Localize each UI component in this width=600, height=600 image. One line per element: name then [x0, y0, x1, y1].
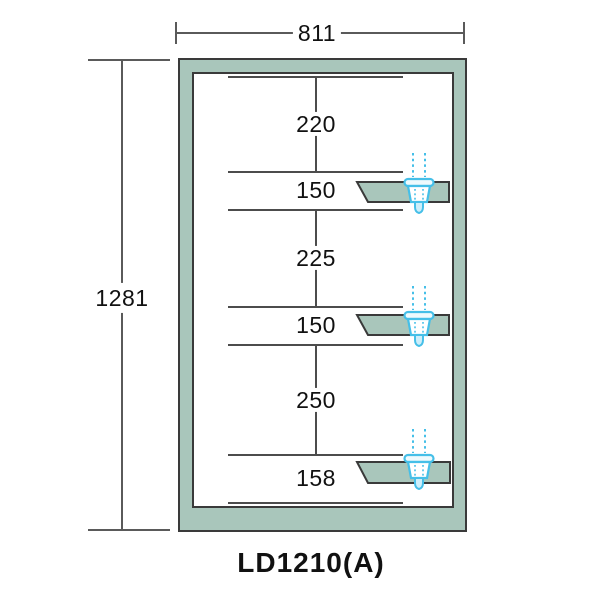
section-dim-label: 150	[291, 313, 341, 337]
section-dim-label: 220	[291, 112, 341, 136]
section-dim-label: 150	[291, 178, 341, 202]
model-label: LD1210(A)	[237, 547, 384, 579]
section-dim-label: 158	[291, 466, 341, 490]
overall-width-label: 811	[293, 21, 341, 45]
shelf	[357, 182, 449, 202]
dimension-diagram: 811 1281 220 150 225 150 250 158 LD1210(…	[0, 0, 600, 600]
shelf	[357, 462, 450, 483]
overall-height-label: 1281	[93, 283, 150, 313]
shelves-and-sprinklers-layer	[0, 0, 600, 600]
section-dim-label: 225	[291, 246, 341, 270]
section-dim-label: 250	[291, 388, 341, 412]
shelf	[357, 315, 449, 335]
sprinkler-icon	[405, 286, 434, 346]
sprinkler-icon	[405, 153, 434, 213]
